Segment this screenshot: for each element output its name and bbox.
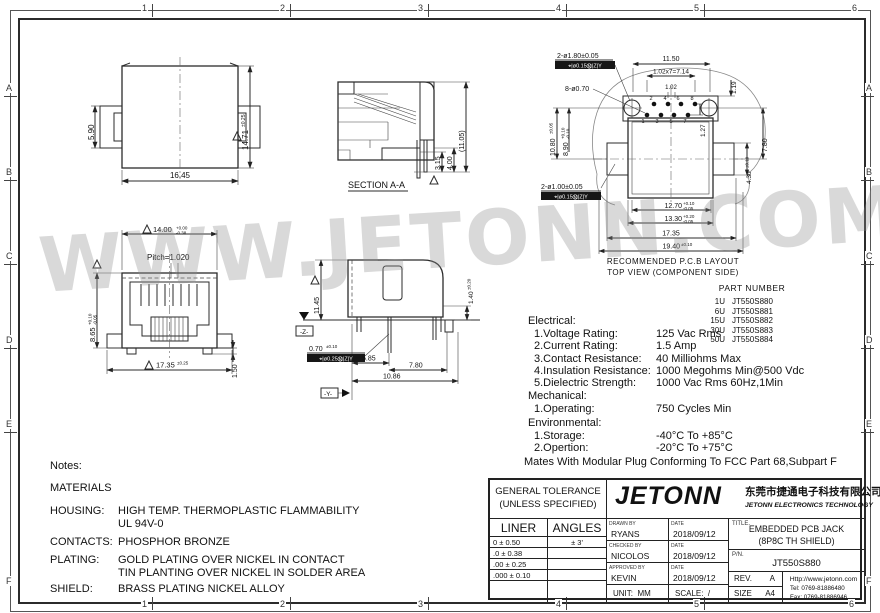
front-view-geometry	[91, 57, 260, 185]
zone-row-d-right: D	[865, 335, 874, 345]
contact-cell: Http://www.jetonn.com Tel: 0769-81886480…	[783, 572, 864, 602]
zone-col-4-top: 4	[555, 3, 562, 13]
tolerance-row-liner: 0 ± 0.50	[490, 537, 548, 548]
drawing-title-cell: TITLE. EMBEDDED PCB JACK (8P8C TH SHIELD…	[729, 519, 864, 550]
dim-side-0-70-tol: ±0.10	[326, 344, 338, 349]
housing-value-1: HIGH TEMP. THERMOPLASTIC FLAMMABILITY	[118, 505, 359, 517]
dim-pcb-1-19: 1.19	[731, 81, 738, 94]
fcf-big-holes: ⌖|ø0.15Ⓜ|Z|Y	[568, 63, 602, 69]
checked-by-cell: CHECKED BYNICOLOS	[607, 541, 669, 563]
shield-label: SHIELD:	[50, 583, 93, 595]
zone-row-e-right: E	[865, 419, 873, 429]
dim-jack-17-35-tol: ±0.25	[177, 361, 189, 366]
zone-col-6-bottom: 6	[848, 599, 855, 609]
tolerance-row-angles	[548, 559, 607, 570]
svg-text:1: 1	[641, 119, 644, 125]
tolerance-row-liner: .0 ± 0.38	[490, 548, 548, 559]
pcb-caption-line1: RECOMMENDED P.C.B LAYOUT	[607, 257, 739, 266]
dim-jack-14-00: 14.00	[153, 225, 172, 234]
liner-header: LINER	[490, 519, 548, 537]
company-name-cn: 东莞市捷通电子科技有限公司	[745, 484, 880, 499]
datum-z-label: -Z-	[300, 329, 308, 336]
dim-front-height-tol: ±0.25	[241, 114, 247, 127]
zone-col-5-bottom: 5	[693, 599, 700, 609]
shield-value: BRASS PLATING NICKEL ALLOY	[118, 583, 285, 595]
tolerance-row-angles: ± 3'	[548, 537, 607, 548]
dim-pcb-row-pitch: 1.02x7=7.14	[653, 69, 689, 76]
pcb-edge-outline	[593, 68, 766, 205]
title-block: GENERAL TOLERANCE (UNLESS SPECIFIED) LIN…	[488, 478, 862, 600]
dim-section-11-05: (11.05)	[459, 130, 466, 152]
engineering-drawing-page: 1 2 3 4 5 6 1 2 3 4 5 6 A B C D E F A B …	[0, 0, 880, 613]
spec-row: 2.Opertion:-20°C To +75°C	[528, 442, 868, 454]
dim-jack-pitch: Pitch=1.020	[147, 253, 190, 262]
dim-pcb-19-40-tol: ±0.10	[681, 242, 693, 247]
svg-text:8: 8	[690, 96, 693, 102]
telephone: Tel: 0769-81886480	[783, 584, 864, 593]
approved-by-cell: APPROVED BYKEVIN	[607, 563, 669, 585]
notes-title: Notes:	[50, 460, 82, 472]
zone-col-2-top: 2	[279, 3, 286, 13]
dim-pcb-big-holes: 2-ø1.80±0.05	[557, 53, 599, 60]
mates-note: Mates With Modular Plug Conforming To FC…	[524, 456, 837, 468]
mechanical-header: Mechanical:	[528, 389, 868, 403]
housing-label: HOUSING:	[50, 505, 104, 517]
jetonn-logo: JETONN	[615, 482, 722, 511]
drawn-date-cell: DATE2018/09/12	[669, 519, 729, 541]
zone-col-3-top: 3	[417, 3, 424, 13]
dim-side-1-40: 1.40	[468, 291, 475, 304]
checked-date-cell: DATE2018/09/12	[669, 541, 729, 563]
tolerance-row-angles	[548, 570, 607, 581]
front-view-drawing: 16.45 5.90 14.71 ±0.25	[88, 52, 263, 202]
pcb-layout-drawing: 2-ø1.80±0.05 ⌖|ø0.15Ⓜ|Z|Y 8-ø0.70 11.50 …	[535, 42, 785, 292]
dim-pcb-8-90-sub: -0.10	[566, 128, 571, 139]
dim-side-7-80: 7.80	[409, 363, 423, 370]
dim-pcb-1-02: 1.02	[665, 85, 677, 91]
svg-text:7: 7	[683, 119, 686, 125]
section-view-drawing: 3.15 4.00 (11.05) SECTION A-A	[330, 60, 475, 203]
dim-section-3-15: 3.15	[435, 156, 442, 170]
datum-y-label: -Y-	[324, 391, 332, 398]
dim-pcb-12-70: 12.70	[664, 203, 682, 210]
dim-jack-8-65: 8.65	[88, 327, 97, 342]
part-number-row: 1UJT550S880	[693, 297, 811, 307]
spec-row: 2.Current Rating:1.5 Amp	[528, 340, 868, 352]
section-label: SECTION A-A	[348, 180, 405, 190]
dim-pcb-10-80: 10.80	[550, 138, 557, 156]
dim-pcb-4-30: 4.30	[746, 171, 753, 184]
tolerance-row-empty	[490, 581, 548, 602]
drawing-title-line2: (8P8C TH SHIELD)	[729, 536, 864, 546]
dim-pcb-4-30-tol: ±0.10	[745, 156, 750, 168]
dim-pcb-1-27: 1.27	[700, 124, 707, 137]
dim-jack-8-65-sub: -0.05	[93, 314, 98, 325]
contacts-label: CONTACTS:	[50, 536, 113, 548]
dim-side-0-70: 0.70	[309, 346, 323, 353]
plating-value-2: TIN PLANTING OVER NICKEL IN SOLDER AREA	[118, 567, 365, 579]
pcb-caption-line2: TOP VIEW (COMPONENT SIDE)	[607, 268, 739, 277]
fcf-mid-holes: ⌖|ø0.15Ⓜ|Z|Y	[554, 194, 588, 200]
spec-row: 3.Contact Resistance:40 Milliohms Max	[528, 353, 868, 365]
side-view-drawing: 11.45 -Z- 1.40 ±0.20 0.70 ±0.10 ⌖|ø0.25Ⓜ…	[295, 248, 485, 411]
svg-text:2: 2	[649, 96, 652, 102]
website: Http://www.jetonn.com	[783, 575, 864, 584]
zone-row-a-right: A	[865, 83, 873, 93]
drawing-title-line1: EMBEDDED PCB JACK	[729, 524, 864, 534]
spec-row: 5.Dielectric Strength:1000 Vac Rms 60Hz,…	[528, 377, 868, 389]
materials-header: MATERIALS	[50, 482, 112, 494]
plating-label: PLATING:	[50, 554, 99, 566]
dim-pcb-10-80-tol: ±0.05	[549, 122, 554, 134]
dim-pcb-11-50: 11.50	[663, 56, 680, 63]
zone-col-6-top: 6	[851, 3, 858, 13]
plating-value-1: GOLD PLATING OVER NICKEL IN CONTACT	[118, 554, 345, 566]
spec-row: 1.Operating:750 Cycles Min	[528, 403, 868, 415]
dim-front-tab: 5.90	[87, 124, 96, 140]
zone-row-a-left: A	[5, 83, 13, 93]
svg-text:4: 4	[663, 96, 666, 102]
rev-cell: REV.A	[729, 572, 783, 587]
tolerance-row-angles	[548, 548, 607, 559]
zone-row-b-left: B	[5, 167, 13, 177]
part-number-value: JT550S880	[729, 558, 864, 569]
zone-col-4-bottom: 4	[555, 599, 562, 609]
dim-front-height: 14.71	[241, 129, 250, 150]
spec-row: 1.Voltage Rating:125 Vac Rms	[528, 328, 868, 340]
zone-row-d-left: D	[5, 335, 14, 345]
jack-front-view-drawing: 14.00 +0.00 -0.38 Pitch=1.020 8.65 +0.10…	[85, 222, 265, 389]
dim-side-1-40-tol: ±0.20	[467, 278, 472, 290]
zone-col-1-bottom: 1	[141, 599, 148, 609]
spec-row: 1.Storage:-40°C To +85°C	[528, 430, 868, 442]
dim-pcb-13-30: 13.30	[664, 216, 682, 223]
svg-text:6: 6	[676, 96, 679, 102]
zone-row-b-right: B	[865, 167, 873, 177]
zone-row-c-right: C	[865, 251, 874, 261]
size-cell: SIZEA4	[729, 587, 783, 602]
dim-section-4-00: 4.00	[447, 156, 454, 170]
part-number-header: PART NUMBER	[693, 283, 811, 293]
environmental-header: Environmental:	[528, 416, 868, 430]
dim-side-5-85: 5.85	[362, 356, 376, 363]
dim-side-10-86: 10.86	[383, 374, 401, 381]
dim-jack-14-00-sub: -0.38	[176, 231, 187, 236]
company-logo-cell: JETONN 东莞市捷通电子科技有限公司 JETONN ELECTRONICS …	[607, 480, 864, 519]
dim-pcb-7-80: 7.80	[762, 138, 769, 152]
svg-text:5: 5	[669, 119, 672, 125]
zone-col-1-top: 1	[141, 3, 148, 13]
dim-pcb-12-70-sub: -0.05	[683, 206, 694, 211]
section-view-geometry	[338, 82, 470, 191]
tolerance-row-liner: .00 ± 0.25	[490, 559, 548, 570]
dim-pcb-17-35: 17.35	[662, 231, 680, 238]
zone-row-f-left: F	[5, 576, 13, 586]
svg-text:3: 3	[655, 119, 658, 125]
dim-pcb-8-90: 8.90	[563, 142, 570, 156]
dim-pcb-small-holes: 8-ø0.70	[565, 86, 589, 93]
housing-value-2: UL 94V-0	[118, 518, 163, 530]
zone-row-f-right: F	[865, 576, 873, 586]
zone-row-c-left: C	[5, 251, 14, 261]
tolerance-row-liner: .000 ± 0.10	[490, 570, 548, 581]
zone-col-5-top: 5	[693, 3, 700, 13]
dim-side-11-45: 11.45	[314, 297, 321, 314]
notes-block: Notes: MATERIALS HOUSING: HIGH TEMP. THE…	[50, 460, 480, 598]
drawn-by-cell: DRAWN BYRYANS	[607, 519, 669, 541]
fcf-side: ⌖|ø0.25Ⓜ|Z|Y	[319, 356, 353, 362]
dim-jack-17-35: 17.35	[156, 361, 175, 370]
dim-pcb-mid-holes: 2-ø1.00±0.05	[541, 184, 583, 191]
zone-row-e-left: E	[5, 419, 13, 429]
zone-col-3-bottom: 3	[417, 599, 424, 609]
dim-jack-1-50: 1.50	[232, 364, 239, 378]
contacts-value: PHOSPHOR BRONZE	[118, 536, 230, 548]
zone-col-2-bottom: 2	[279, 599, 286, 609]
jack-geometry	[93, 225, 237, 374]
angles-header: ANGLES	[548, 519, 607, 537]
general-tolerance-header: GENERAL TOLERANCE (UNLESS SPECIFIED)	[490, 480, 607, 519]
spec-row: 4.Insulation Resistance:1000 Megohms Min…	[528, 365, 868, 377]
approved-date-cell: DATE2018/09/12	[669, 563, 729, 585]
dim-pcb-13-30-sub: -0.05	[683, 219, 694, 224]
dim-pcb-19-40: 19.40	[662, 244, 680, 251]
electrical-header: Electrical:	[528, 314, 868, 328]
part-number-cell: P/N. JT550S880	[729, 550, 864, 572]
specifications-block: Electrical: 1.Voltage Rating:125 Vac Rms…	[528, 314, 868, 454]
unit-cell: UNIT: MM	[607, 585, 669, 602]
company-name-en: JETONN ELECTRONICS TECHNOLOGY	[745, 502, 873, 509]
dim-front-width: 16.45	[170, 171, 191, 180]
